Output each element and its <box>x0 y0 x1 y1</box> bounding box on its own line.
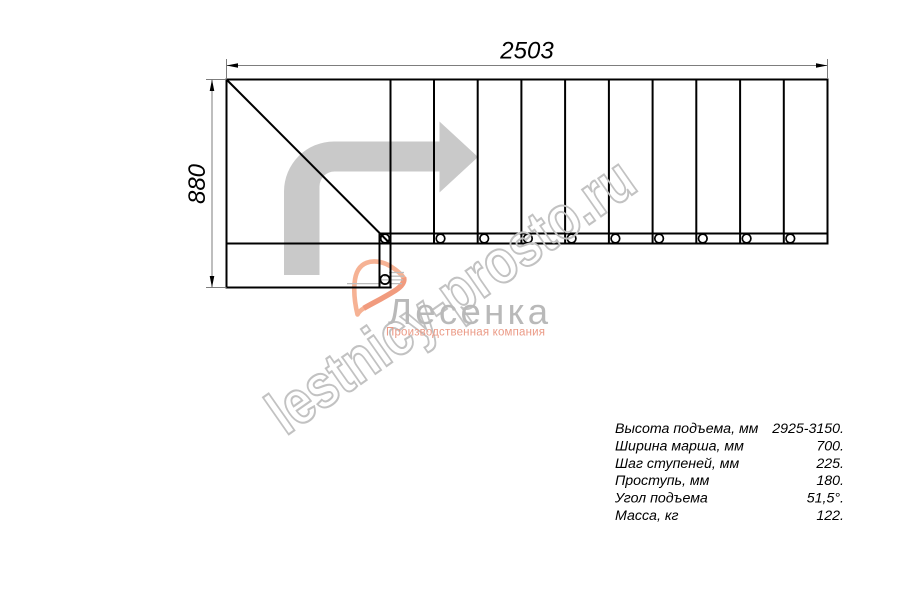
svg-text:Масса, кг: Масса, кг <box>615 508 679 524</box>
svg-text:Производственная компания: Производственная компания <box>386 327 545 339</box>
svg-text:700.: 700. <box>816 438 844 454</box>
svg-text:Высота подъема, мм: Высота подъема, мм <box>615 421 759 437</box>
svg-text:Угол подъема: Угол подъема <box>614 491 708 507</box>
svg-text:Шаг ступеней, мм: Шаг ступеней, мм <box>615 456 739 472</box>
svg-text:880: 880 <box>184 163 211 204</box>
svg-text:122.: 122. <box>816 508 844 524</box>
svg-text:Проступь, мм: Проступь, мм <box>615 473 710 489</box>
svg-text:225.: 225. <box>815 456 844 472</box>
svg-text:Ширина марша, мм: Ширина марша, мм <box>615 438 744 454</box>
svg-text:2925-3150.: 2925-3150. <box>771 421 844 437</box>
svg-text:2503: 2503 <box>499 38 554 65</box>
svg-text:180.: 180. <box>816 473 844 489</box>
svg-text:51,5°.: 51,5°. <box>807 491 844 507</box>
